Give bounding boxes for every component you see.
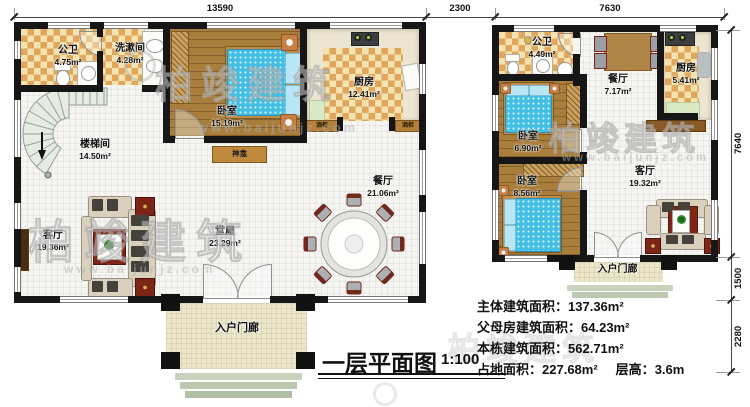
wall xyxy=(580,190,587,255)
info-line-4: 占地面积：227.68m²层高：3.6m xyxy=(477,359,684,380)
dim-line-right xyxy=(731,30,732,372)
dining-chair xyxy=(594,36,607,52)
building-info: 主体建筑面积：137.36m² 父母房建筑面积：64.23m² 本栋建筑面积：5… xyxy=(477,296,684,380)
spiral-staircase xyxy=(12,82,116,182)
room-label-porch: 入户门廊 xyxy=(187,322,287,335)
par-dining-table xyxy=(604,33,652,71)
wall-left xyxy=(14,22,21,303)
watermark-site: www.baijunjz.com xyxy=(198,120,358,135)
window xyxy=(14,203,21,229)
window xyxy=(419,150,426,195)
room-area: 7.17m² xyxy=(588,86,648,96)
room-name: 卧室 xyxy=(517,176,537,187)
par-bed1-quilt xyxy=(505,95,552,133)
main-nightstand-1 xyxy=(281,34,298,51)
info-label: 占地面积： xyxy=(477,362,542,377)
porch-pillar xyxy=(161,352,180,369)
wall xyxy=(163,136,175,143)
floor-plan-canvas: 神龛 酒柜 酒柜 xyxy=(0,0,750,407)
room-name: 厨房 xyxy=(676,63,696,74)
window xyxy=(14,267,21,292)
burner-icon-2 xyxy=(679,34,686,41)
room-name: 入户门廊 xyxy=(598,264,638,275)
window xyxy=(505,255,547,262)
room-name: 入户门廊 xyxy=(215,322,259,334)
shrine-shelf: 神龛 xyxy=(212,146,267,163)
window xyxy=(492,95,499,131)
porch-step xyxy=(174,372,303,381)
window xyxy=(207,22,295,29)
room-name: 厨房 xyxy=(354,77,374,88)
sofa-cushion xyxy=(107,281,118,292)
room-name: 公卫 xyxy=(58,45,78,56)
par-bed2-quilt xyxy=(515,198,561,252)
room-area: 4.49m² xyxy=(512,49,572,59)
window xyxy=(711,100,718,140)
par-armchair-left xyxy=(646,205,661,235)
sofa-cushion xyxy=(666,235,678,244)
wine-cabinet-label: 酒柜 xyxy=(402,123,414,129)
main-porch-floor xyxy=(166,303,307,369)
window xyxy=(328,296,408,303)
room-name: 餐厅 xyxy=(373,176,393,187)
window xyxy=(514,25,554,32)
room-name: 客厅 xyxy=(635,166,655,177)
watermark-site: www.baijunjz.com xyxy=(64,262,216,276)
info-label: 本栋建筑面积： xyxy=(477,341,568,356)
porch-pillar xyxy=(296,352,315,369)
dim-label-7640: 7640 xyxy=(733,113,744,173)
burner-icon-1 xyxy=(354,34,361,41)
window xyxy=(48,22,90,29)
par-bed2-pillow-1 xyxy=(504,199,516,225)
room-area: 8.56m² xyxy=(497,188,557,198)
nightstand xyxy=(500,83,511,94)
room-label-porch: 入户门廊 xyxy=(570,264,665,276)
plan-scale-text: 1:100 xyxy=(441,351,479,368)
room-area: 4.75m² xyxy=(38,57,98,67)
porch-pillar xyxy=(161,294,180,311)
info-value: 562.71m² xyxy=(568,341,624,356)
wall xyxy=(14,85,103,92)
room-area: 14.50m² xyxy=(60,151,130,161)
dim-label-1500: 1500 xyxy=(733,256,744,301)
end-table-1 xyxy=(645,238,661,254)
window xyxy=(330,22,402,29)
round-dining-table xyxy=(302,192,406,296)
info-line-2: 父母房建筑面积：64.23m² xyxy=(477,317,684,338)
info-value: 137.36m² xyxy=(568,299,624,314)
info-line-3: 本栋建筑面积：562.71m² xyxy=(477,338,684,359)
room-label-living: 客厅19.32m² xyxy=(615,166,675,188)
brand-logo-icon xyxy=(124,50,156,82)
shrine-label: 神龛 xyxy=(232,149,247,158)
plan-title-text: 一层平面图 xyxy=(322,350,437,376)
wall xyxy=(573,54,580,86)
dim-label-13590: 13590 xyxy=(190,3,250,14)
brand-logo-icon xyxy=(373,382,397,406)
room-label-kitchen: 厨房5.41m² xyxy=(656,63,716,85)
room-area: 5.41m² xyxy=(656,75,716,85)
sofa-cushion xyxy=(682,235,694,244)
burner-icon-2 xyxy=(365,34,372,41)
room-area: 19.32m² xyxy=(615,178,675,188)
info-value: 227.68m² xyxy=(542,362,598,377)
kitchen-wall-stub-2 xyxy=(389,117,395,131)
vanity-basin xyxy=(81,66,96,81)
nightstand xyxy=(549,83,560,94)
wall xyxy=(97,29,103,37)
plant-icon xyxy=(677,215,686,224)
room-name: 楼梯间 xyxy=(80,139,110,150)
room-label-dining: 餐厅21.06m² xyxy=(348,176,418,198)
dining-chair xyxy=(594,53,607,69)
info-line-1: 主体建筑面积：137.36m² xyxy=(477,296,684,317)
plan-title: 一层平面图 xyxy=(322,344,437,378)
wall xyxy=(204,136,307,143)
watermark-site: www.baijunjz.com xyxy=(562,152,709,164)
window xyxy=(14,41,21,59)
porch-step xyxy=(184,390,293,399)
wall xyxy=(573,32,580,38)
info-label: 主体建筑面积： xyxy=(477,299,568,314)
wine-cabinet-right: 酒柜 xyxy=(395,120,421,132)
info-value: 3.6m xyxy=(655,362,685,377)
dim-label-7630: 7630 xyxy=(580,3,640,14)
window xyxy=(660,25,696,32)
end-table-2 xyxy=(135,278,155,297)
wall xyxy=(492,74,587,81)
room-name: 餐厅 xyxy=(608,74,628,85)
dim-label-2300: 2300 xyxy=(435,3,485,14)
dim-label-2280: 2280 xyxy=(733,310,744,362)
vanity-basin xyxy=(536,59,550,73)
room-name: 卧室 xyxy=(518,131,538,142)
burner-icon-1 xyxy=(668,34,675,41)
info-value: 64.23m² xyxy=(581,320,629,335)
window xyxy=(14,100,21,157)
window xyxy=(419,64,426,94)
room-label-bath: 公卫4.49m² xyxy=(512,37,572,59)
window xyxy=(104,22,148,29)
porch-pillar xyxy=(296,294,315,311)
room-label-kitchen: 厨房12.41m² xyxy=(329,77,399,99)
dim-line-top xyxy=(14,17,724,18)
window xyxy=(419,212,426,264)
room-label-bath: 公卫4.75m² xyxy=(38,45,98,67)
room-area: 12.41m² xyxy=(329,89,399,99)
window xyxy=(60,296,128,303)
room-label-bed2: 卧室8.56m² xyxy=(497,176,557,198)
wall-bottom xyxy=(640,255,718,262)
room-area: 21.06m² xyxy=(348,188,418,198)
window xyxy=(711,200,718,240)
sofa-cushion xyxy=(92,281,103,292)
room-name: 公卫 xyxy=(532,37,552,48)
info-label: 父母房建筑面积： xyxy=(477,320,581,335)
porch-step xyxy=(179,381,298,390)
info-label: 层高： xyxy=(616,362,655,377)
room-label-stair: 楼梯间14.50m² xyxy=(60,139,130,161)
room-label-dining: 餐厅7.17m² xyxy=(588,74,648,96)
watermark-brand: 柏竣建筑 xyxy=(155,54,339,109)
plan-scale: 1:100 xyxy=(441,351,479,368)
